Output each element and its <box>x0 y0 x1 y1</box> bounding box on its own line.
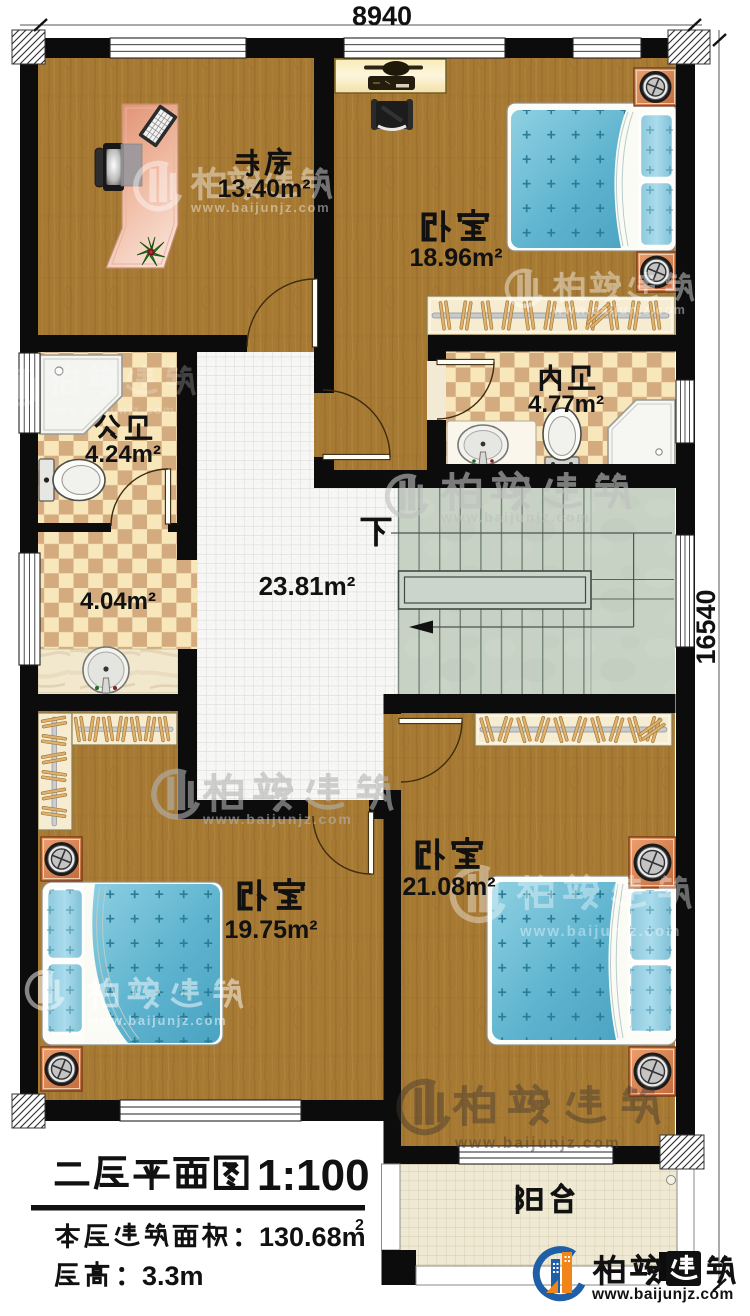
svg-text:19.75m²: 19.75m² <box>224 916 317 944</box>
svg-text:www.baijunjz.com: www.baijunjz.com <box>87 1013 227 1028</box>
svg-text:www.baijunjz.com: www.baijunjz.com <box>45 403 175 417</box>
svg-text:：130.68m: ：130.68m <box>232 1222 366 1252</box>
svg-text:：3.3m: ：3.3m <box>115 1261 204 1291</box>
svg-text:1:100: 1:100 <box>257 1151 370 1200</box>
svg-text:www.baijunjz.com: www.baijunjz.com <box>552 303 686 317</box>
svg-text:18.96m²: 18.96m² <box>409 244 502 272</box>
svg-text:4.77m²: 4.77m² <box>528 391 604 418</box>
svg-text:21.08m²: 21.08m² <box>402 873 495 901</box>
svg-text:www.baijunjz.com: www.baijunjz.com <box>591 1286 734 1303</box>
svg-text:www.baijunjz.com: www.baijunjz.com <box>440 509 591 525</box>
svg-text:13.40m²: 13.40m² <box>217 175 310 203</box>
svg-text:www.baijunjz.com: www.baijunjz.com <box>454 1135 621 1152</box>
svg-text:2: 2 <box>355 1217 364 1234</box>
svg-text:23.81m²: 23.81m² <box>259 571 356 601</box>
svg-text:8940: 8940 <box>352 1 412 31</box>
svg-text:4.04m²: 4.04m² <box>80 588 156 615</box>
svg-text:www.baijunjz.com: www.baijunjz.com <box>202 811 353 827</box>
svg-text:www.baijunjz.com: www.baijunjz.com <box>519 923 681 940</box>
svg-text:4.24m²: 4.24m² <box>85 441 161 468</box>
svg-text:16540: 16540 <box>691 589 721 664</box>
